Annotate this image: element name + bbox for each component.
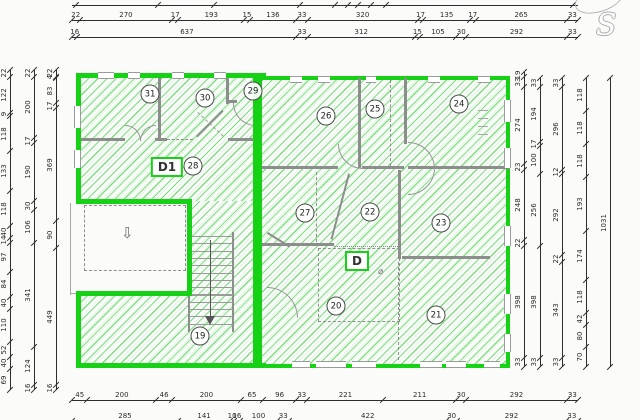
wall-segment [80,138,125,141]
dimension-label: 17 [46,101,54,110]
boundary-dotted [334,246,398,247]
wall-segment [402,256,490,259]
dimension-label: 16 [70,28,79,36]
unit-d1-outline-porch-bottom [76,291,192,296]
dimension-label: 84 [0,280,8,289]
porch-slab-edge [70,203,71,295]
dimension-label: 422 [361,412,374,420]
door-symbol-icon: ⌀ [378,267,383,277]
dimension-label: 33 [552,78,560,87]
dimension-label: 292 [510,28,523,36]
dimension-label: 33 [297,391,306,399]
window-mark [484,361,500,368]
dimension-label: 110 [0,319,8,332]
window-mark [366,76,376,83]
room-badge-29: 29 [244,82,263,101]
dimension-label: 118 [0,127,8,140]
dimension-line-top-row-0 [72,5,578,6]
dimension-label: 141 [197,412,210,420]
window-mark [428,76,440,83]
wall-segment [404,78,407,144]
dimension-label: 135 [440,11,453,19]
dimension-label: 22 [514,238,522,247]
dimension-label: 292 [505,412,518,420]
porch-direction-arrow: ⇩ [121,224,134,242]
dimension-label: 133 [0,164,8,177]
dimension-label: 1031 [600,214,608,232]
unit-d1-hatch-lower [80,293,190,365]
unit-d1-outline-porch-top [76,199,192,204]
dimension-label: 30 [447,412,456,420]
dimension-tick [607,364,613,370]
unit-d1-outline-porch-right [187,199,192,295]
dimension-label: 118 [576,290,584,303]
shaft-mark [478,110,488,111]
dimension-line-right-col-5 [610,78,611,367]
dimension-label: 22 [24,69,32,78]
dimension-label: 33 [567,412,576,420]
dimension-label: 136 [266,11,279,19]
dimension-label: 200 [200,391,213,399]
dimension-label: 124 [24,359,32,372]
window-mark [316,361,346,368]
room-badge-19: 19 [191,327,210,346]
room-badge-21: 21 [427,306,446,325]
dimension-label: 30 [457,391,466,399]
floor-plan-canvas: S [0,0,640,420]
window-mark [504,100,511,122]
room-badge-28: 28 [184,157,203,176]
dimension-label: 100 [530,154,538,167]
dimension-label: 45 [75,391,84,399]
dimension-label: 292 [510,391,523,399]
unit-d1-outline-bottom [76,363,266,368]
window-mark [446,361,466,368]
dimension-label: 274 [514,118,522,131]
room-badge-25: 25 [366,100,385,119]
window-mark [74,106,81,128]
wall-segment [158,77,161,138]
dimension-label: 40 [0,298,8,307]
room-badge-20: 20 [327,297,346,316]
window-mark [504,226,511,246]
unit-label-d: D [345,251,369,271]
dimension-label: 122 [0,88,8,101]
dimension-label: 118 [0,202,8,215]
shaft-mark [478,126,488,127]
dimension-line-left-col-2 [34,70,35,390]
dimension-label: 52 [0,345,8,354]
dimension-label: 341 [24,288,32,301]
dimension-label: 296 [552,122,560,135]
dimension-label: 17 [468,11,477,19]
window-mark [98,72,114,79]
dimension-label: 118 [576,121,584,134]
dimension-label: 69 [0,375,8,384]
dimension-label: 118 [576,88,584,101]
dimension-label: 46 [160,391,169,399]
dimension-label: 105 [431,28,444,36]
dimension-label: 193 [576,198,584,211]
dimension-label: 14 [0,236,8,245]
dimension-label: 22 [71,11,80,19]
dimension-label: 33 [279,412,288,420]
dimension-label: 174 [576,249,584,262]
dimension-label: 33 [530,358,538,367]
dimension-tick [7,387,13,393]
dimension-label: 33 [568,28,577,36]
window-mark [318,76,330,83]
dimension-label: 256 [530,204,538,217]
dimension-label: 12 [552,167,560,176]
dimension-label: 33 [568,391,577,399]
dimension-label: 33 [298,28,307,36]
shaft-mark [478,118,488,119]
dimension-label: 80 [576,332,584,341]
dimension-label: 16 [46,383,54,392]
window-mark [478,76,490,83]
window-mark [504,148,511,168]
dimension-tick [583,364,589,370]
dimension-label: 194 [530,108,538,121]
window-mark [352,361,376,368]
wall-opening-dashed [167,139,193,140]
unit-divider-wall [253,73,262,367]
window-mark [214,72,226,79]
dimension-label: 118 [576,154,584,167]
dimension-line-top-row-1 [72,20,578,21]
dimension-label: 398 [514,295,522,308]
wall-segment [262,243,334,246]
wall-opening-dashed [316,172,317,242]
dimension-line-right-col-1 [524,72,525,367]
room-badge-24: 24 [450,95,469,114]
dimension-line-right-col-3 [562,78,563,367]
dimension-label: 285 [118,412,131,420]
dimension-label: 15 [413,28,422,36]
wall-opening-dashed [390,80,391,166]
dimension-label: 200 [24,101,32,114]
shaft-mark [478,134,488,135]
room-badge-30: 30 [196,89,215,108]
dimension-label: 369 [46,158,54,171]
dimension-line-bottom-row-1 [72,400,578,401]
dimension-label: 22 [552,254,560,263]
stair-step [189,236,233,237]
dimension-label: 343 [552,303,560,316]
dimension-label: 221 [339,391,352,399]
wall-segment [155,138,167,141]
dimension-line-left-col-3 [56,70,57,390]
unit-d1-outline-left-lower [76,291,81,367]
dimension-label: 42 [576,315,584,324]
dimension-label: 33 [298,11,307,19]
wall-segment [362,166,404,169]
dimension-label: 33 [530,78,538,87]
window-mark [504,294,511,314]
dimension-label: 200 [115,391,128,399]
dimension-label: 70 [576,353,584,362]
stair-down-arrow [205,316,215,325]
unit-d-area [258,76,510,368]
dimension-label: 637 [180,28,193,36]
dimension-label: 33 [514,78,522,87]
dimension-label: 211 [413,391,426,399]
dimension-label: 292 [552,208,560,221]
window-mark [74,150,81,168]
dimension-label: 270 [119,11,132,19]
room-badge-26: 26 [317,107,336,126]
dimension-label: 248 [514,198,522,211]
window-mark [172,72,184,79]
window-mark [290,76,302,83]
wall-opening-dashed [398,262,399,360]
window-mark [420,361,442,368]
dimension-label: 16 [24,383,32,392]
dimension-label: 22 [0,69,8,78]
dimension-label: 23 [514,162,522,171]
dimension-label: 106 [24,220,32,233]
dimension-label: 398 [530,295,538,308]
room-badge-31: 31 [141,85,160,104]
dimension-label: 17 [171,11,180,19]
dimension-line-right-col-2 [540,78,541,367]
window-mark [292,361,310,368]
window-mark [128,72,140,79]
dimension-label: 96 [275,391,284,399]
porch-dashed-outline [84,205,186,271]
dimension-label: 193 [205,11,218,19]
logo-letter: S [596,8,617,43]
dimension-label: 33 [568,11,577,19]
dimension-label: 9 [0,112,8,116]
dimension-label: 320 [356,11,369,19]
dimension-label: 97 [0,253,8,262]
unit-label-d1: D1 [151,157,183,177]
dimension-label: 40 [0,359,8,368]
dimension-label: 30 [457,28,466,36]
dimension-label: 17 [416,11,425,19]
room-badge-22: 22 [361,203,380,222]
dimension-label: 4 [46,75,54,79]
dimension-label: 65 [247,391,256,399]
dimension-label: 33 [552,358,560,367]
dimension-label: 17 [530,140,538,149]
dimension-label: 190 [24,165,32,178]
dimension-line-top-row-2 [72,37,578,38]
dimension-label: 15 [243,11,252,19]
window-mark [504,334,511,352]
dimension-label: 449 [46,310,54,323]
dimension-label: 265 [514,11,527,19]
dimension-label: 30 [24,201,32,210]
dimension-label: 33 [514,358,522,367]
stair-arrow-stem [210,240,211,318]
dimension-label: 312 [355,28,368,36]
dimension-label: 16 [232,412,241,420]
room-badge-23: 23 [432,214,451,233]
dimension-label: 100 [252,412,265,420]
unit-d1-outline-left [76,73,81,203]
dimension-label: 83 [46,86,54,95]
wall-segment [398,170,401,259]
dimension-label: 17 [24,136,32,145]
dimension-label: 90 [46,230,54,239]
wall-segment [262,166,338,169]
room-badge-27: 27 [296,204,315,223]
